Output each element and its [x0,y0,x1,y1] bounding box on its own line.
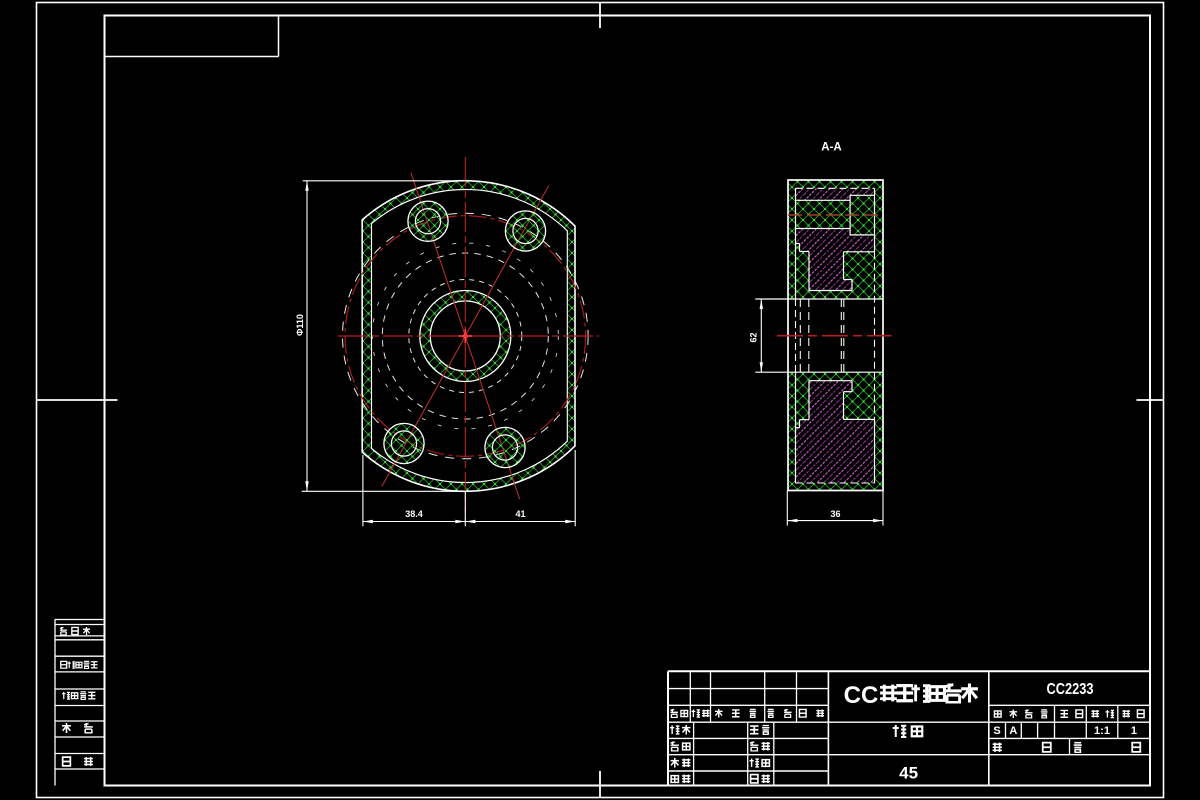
svg-text:1: 1 [1131,725,1137,737]
svg-text:Φ110: Φ110 [295,314,305,336]
svg-text:62: 62 [749,332,759,342]
svg-text:41: 41 [515,509,525,519]
svg-text:1:1: 1:1 [1094,725,1110,737]
svg-text:CC2233: CC2233 [1047,681,1094,698]
svg-text:S: S [993,725,1000,737]
svg-text:A: A [1009,725,1017,737]
svg-text:36: 36 [830,509,840,519]
svg-text:CC: CC [844,682,879,709]
svg-text:45: 45 [899,764,918,783]
svg-text:38.4: 38.4 [405,509,423,519]
svg-text:A-A: A-A [821,142,841,154]
